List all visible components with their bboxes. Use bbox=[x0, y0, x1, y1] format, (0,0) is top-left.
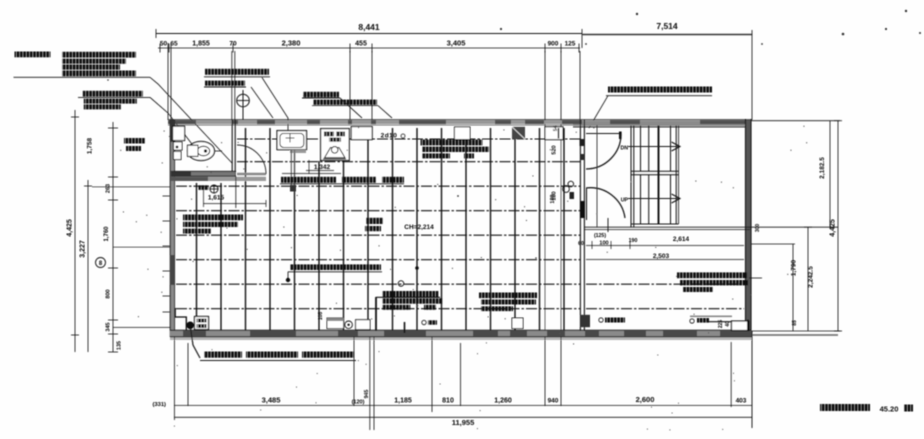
svg-text:4,425: 4,425 bbox=[830, 219, 837, 237]
svg-text:1,185: 1,185 bbox=[394, 398, 412, 405]
svg-text:7,514: 7,514 bbox=[656, 21, 678, 31]
svg-text:2,614: 2,614 bbox=[673, 236, 690, 243]
svg-text:(125): (125) bbox=[594, 233, 606, 239]
svg-text:(120): (120) bbox=[352, 400, 365, 406]
svg-text:105: 105 bbox=[318, 312, 324, 321]
svg-text:2,600: 2,600 bbox=[636, 395, 655, 404]
svg-text:4,425: 4,425 bbox=[67, 219, 74, 237]
svg-text:2d10: 2d10 bbox=[381, 133, 398, 140]
svg-text:520: 520 bbox=[552, 145, 558, 154]
svg-text:2,503: 2,503 bbox=[653, 253, 670, 260]
svg-text:70: 70 bbox=[229, 41, 237, 48]
svg-text:945: 945 bbox=[364, 390, 370, 399]
svg-text:50: 50 bbox=[160, 41, 168, 48]
svg-text:1,790: 1,790 bbox=[791, 259, 798, 276]
svg-text:810: 810 bbox=[442, 398, 454, 405]
svg-text:180: 180 bbox=[550, 194, 556, 203]
svg-text:2,182.5: 2,182.5 bbox=[819, 157, 826, 179]
svg-text:1,615: 1,615 bbox=[208, 195, 225, 202]
svg-text:455: 455 bbox=[355, 41, 367, 48]
svg-text:2,242.5: 2,242.5 bbox=[808, 266, 815, 288]
svg-text:11,955: 11,955 bbox=[452, 418, 475, 427]
svg-text:54: 54 bbox=[553, 126, 559, 132]
svg-text:3,485: 3,485 bbox=[262, 396, 281, 405]
svg-text:UP: UP bbox=[621, 198, 629, 204]
svg-text:CH=2,214: CH=2,214 bbox=[404, 224, 434, 231]
svg-text:403: 403 bbox=[736, 398, 747, 405]
svg-text:1,260: 1,260 bbox=[494, 398, 512, 405]
svg-text:DN: DN bbox=[621, 146, 629, 152]
svg-text:940: 940 bbox=[548, 398, 559, 405]
svg-text:263: 263 bbox=[106, 184, 112, 193]
svg-text:2,380: 2,380 bbox=[282, 39, 301, 48]
svg-text:65: 65 bbox=[170, 41, 178, 48]
svg-text:125: 125 bbox=[565, 41, 576, 48]
svg-text:8,441: 8,441 bbox=[358, 22, 380, 32]
svg-text:3,405: 3,405 bbox=[447, 39, 466, 48]
svg-text:900: 900 bbox=[548, 41, 559, 48]
svg-text:1,855: 1,855 bbox=[192, 41, 210, 48]
svg-text:1,342: 1,342 bbox=[314, 164, 331, 171]
svg-text:300: 300 bbox=[755, 224, 761, 233]
svg-text:225: 225 bbox=[718, 320, 724, 329]
svg-text:60: 60 bbox=[578, 241, 584, 247]
svg-text:1,758: 1,758 bbox=[87, 137, 94, 154]
svg-text:85: 85 bbox=[792, 320, 798, 326]
svg-text:45.20: 45.20 bbox=[880, 405, 899, 414]
svg-text:800: 800 bbox=[106, 289, 112, 298]
svg-text:(331): (331) bbox=[152, 402, 166, 408]
svg-text:345: 345 bbox=[106, 322, 112, 331]
svg-text:135: 135 bbox=[117, 341, 123, 350]
svg-text:1,760: 1,760 bbox=[104, 226, 110, 242]
svg-text:3,227: 3,227 bbox=[80, 240, 87, 258]
